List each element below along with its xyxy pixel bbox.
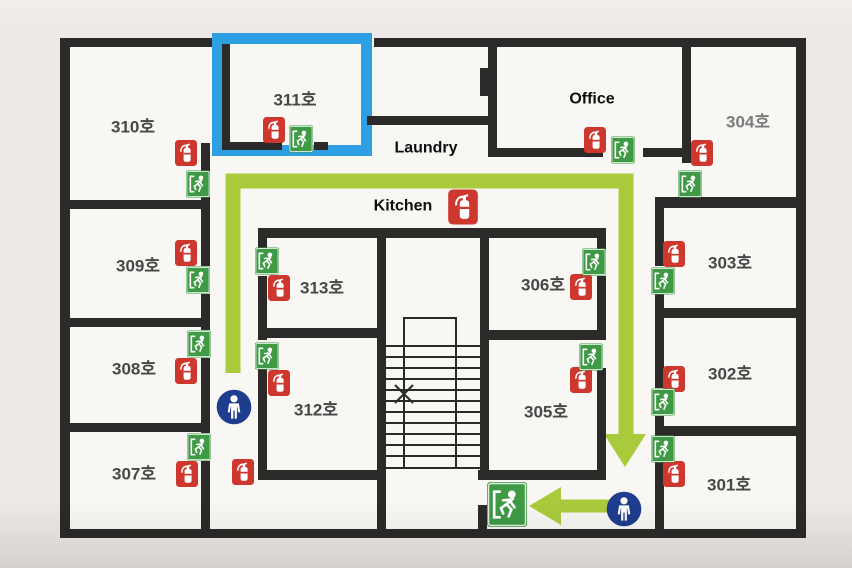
room-label-313: 313호: [300, 279, 344, 298]
wall-segment: [60, 38, 212, 47]
wall-segment: [60, 38, 70, 538]
fire-extinguisher-icon: [232, 459, 254, 485]
wall-segment: [258, 228, 267, 250]
fire-extinguisher-icon: [263, 117, 285, 143]
fire-extinguisher-icon: [663, 461, 685, 487]
fire-extinguisher-icon: [175, 140, 197, 166]
room-label-301: 301호: [707, 476, 751, 495]
exit-sign-icon: [611, 137, 635, 164]
fire-extinguisher-icon: [691, 140, 713, 166]
wall-segment: [367, 116, 497, 125]
room-label-305: 305호: [524, 403, 568, 422]
wall-segment: [597, 368, 606, 480]
wall-segment: [597, 228, 606, 250]
wall-segment: [60, 423, 210, 432]
wall-segment: [60, 200, 210, 209]
fire-extinguisher-icon: [268, 370, 290, 396]
wall-segment: [655, 426, 806, 436]
wall-segment: [258, 328, 386, 338]
evacuation-map-photo: 310호311호309호308호307호313호312호306호305호304호…: [0, 0, 852, 568]
wall-segment: [201, 143, 210, 171]
wall-segment: [682, 47, 691, 163]
main-exit-sign-icon: [487, 482, 527, 527]
wall-segment: [655, 208, 664, 266]
exit-sign-icon: [255, 248, 279, 275]
exit-sign-icon: [582, 249, 606, 276]
fire-extinguisher-icon: [663, 366, 685, 392]
wall-segment: [480, 330, 606, 340]
wall-segment: [655, 318, 664, 388]
area-label-office: Office: [569, 91, 614, 108]
exit-sign-icon: [187, 331, 211, 358]
wall-segment: [201, 358, 210, 433]
floor-area: [60, 38, 806, 538]
fire-extinguisher-icon: [176, 461, 198, 487]
fire-extinguisher-icon: [570, 367, 592, 393]
exit-sign-icon: [579, 344, 603, 371]
room-label-312: 312호: [294, 401, 338, 420]
wall-segment: [655, 308, 806, 318]
exit-sign-icon: [289, 126, 313, 153]
person-icon: [607, 492, 642, 527]
wall-segment: [222, 44, 230, 142]
wall-segment: [258, 228, 606, 238]
wall-segment: [222, 142, 282, 150]
exit-sign-icon: [651, 389, 675, 416]
exit-sign-icon: [187, 434, 211, 461]
fire-extinguisher-icon: [268, 275, 290, 301]
wall-segment: [478, 470, 603, 480]
wall-segment: [488, 47, 497, 157]
person-icon: [217, 390, 252, 425]
room-label-308: 308호: [112, 360, 156, 379]
fire-extinguisher-icon: [663, 241, 685, 267]
fire-extinguisher-icon: [175, 240, 197, 266]
wall-segment: [480, 228, 489, 480]
wall-segment: [796, 38, 806, 538]
room-label-306: 306호: [521, 276, 565, 295]
room-label-303: 303호: [708, 254, 752, 273]
room-label-310: 310호: [111, 118, 155, 137]
fire-extinguisher-icon: [175, 358, 197, 384]
wall-segment: [314, 142, 328, 150]
fire-extinguisher-icon: [570, 274, 592, 300]
exit-sign-icon: [678, 171, 702, 198]
room-label-302: 302호: [708, 365, 752, 384]
wall-segment: [655, 462, 664, 529]
wall-segment: [258, 470, 380, 480]
room-label-304: 304호: [726, 113, 770, 132]
wall-segment: [478, 505, 487, 529]
exit-sign-icon: [255, 343, 279, 370]
floor-plan: 310호311호309호308호307호313호312호306호305호304호…: [0, 0, 852, 568]
exit-sign-icon: [186, 171, 210, 198]
exit-sign-icon: [651, 268, 675, 295]
room-label-311: 311호: [273, 91, 316, 110]
wall-segment: [655, 416, 664, 426]
wall-segment: [60, 529, 806, 538]
fire-extinguisher-icon: [448, 190, 478, 225]
wall-segment: [258, 368, 267, 480]
area-label-kitchen: Kitchen: [374, 198, 433, 215]
wall-segment: [201, 461, 210, 529]
fire-extinguisher-icon: [584, 127, 606, 153]
wall-segment: [201, 197, 210, 266]
exit-sign-icon: [186, 267, 210, 294]
room-label-309: 309호: [116, 257, 160, 276]
wall-segment: [374, 38, 806, 47]
room-label-307: 307호: [112, 465, 156, 484]
wall-segment: [377, 228, 386, 529]
wall-segment: [655, 294, 664, 308]
wall-segment: [480, 68, 488, 96]
area-label-laundry: Laundry: [394, 140, 457, 157]
exit-sign-icon: [651, 436, 675, 463]
wall-segment: [201, 294, 210, 330]
wall-segment: [655, 197, 806, 208]
wall-segment: [60, 318, 210, 327]
